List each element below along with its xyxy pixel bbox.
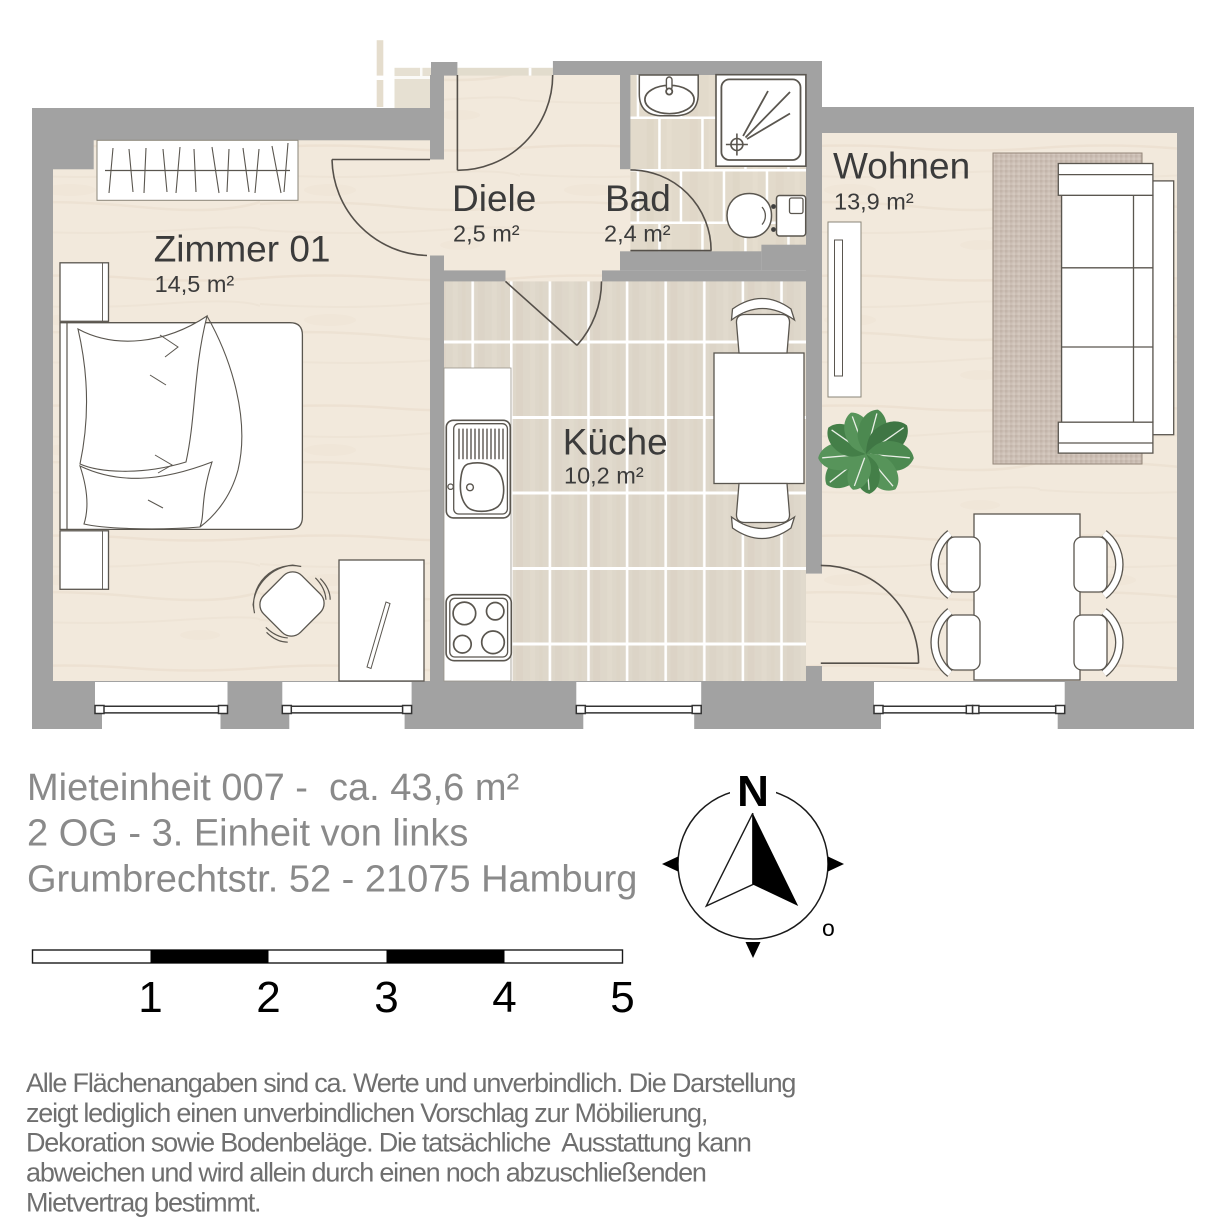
svg-text:Dekoration sowie Bodenbeläge.: Dekoration sowie Bodenbeläge. Die tatsäc…	[26, 1128, 751, 1158]
svg-text:Wohnen: Wohnen	[833, 146, 970, 187]
svg-text:Bad: Bad	[605, 178, 671, 219]
svg-text:Mieteinheit 007 - ca. 43,6 m²: Mieteinheit 007 - ca. 43,6 m²	[27, 767, 519, 809]
svg-text:2,5 m²: 2,5 m²	[453, 221, 520, 247]
svg-text:Grumbrechtstr. 52 - 21075 Hamb: Grumbrechtstr. 52 - 21075 Hamburg	[27, 858, 637, 900]
svg-text:zeigt lediglich einen unverbin: zeigt lediglich einen unverbindlichen Vo…	[26, 1098, 707, 1128]
svg-text:13,9 m²: 13,9 m²	[834, 189, 914, 215]
svg-text:4: 4	[492, 973, 516, 1022]
svg-text:1: 1	[138, 973, 162, 1022]
svg-text:N: N	[737, 767, 769, 816]
svg-text:5: 5	[610, 973, 634, 1022]
svg-text:o: o	[822, 915, 835, 941]
svg-text:10,2 m²: 10,2 m²	[564, 463, 644, 489]
svg-text:Alle Flächenangaben sind ca. W: Alle Flächenangaben sind ca. Werte und u…	[26, 1068, 795, 1098]
svg-text:Zimmer 01: Zimmer 01	[154, 228, 331, 269]
svg-text:Mietvertrag bestimmt.: Mietvertrag bestimmt.	[26, 1187, 260, 1217]
svg-text:abweichen und wird allein durc: abweichen und wird allein durch einen no…	[26, 1158, 706, 1188]
svg-text:2: 2	[256, 973, 280, 1022]
svg-text:2,4 m²: 2,4 m²	[604, 221, 671, 247]
svg-text:14,5 m²: 14,5 m²	[155, 271, 235, 297]
svg-text:3: 3	[374, 973, 398, 1022]
svg-text:2 OG - 3. Einheit von links: 2 OG - 3. Einheit von links	[27, 813, 468, 855]
svg-text:Küche: Küche	[563, 421, 668, 462]
svg-text:Diele: Diele	[452, 178, 536, 219]
